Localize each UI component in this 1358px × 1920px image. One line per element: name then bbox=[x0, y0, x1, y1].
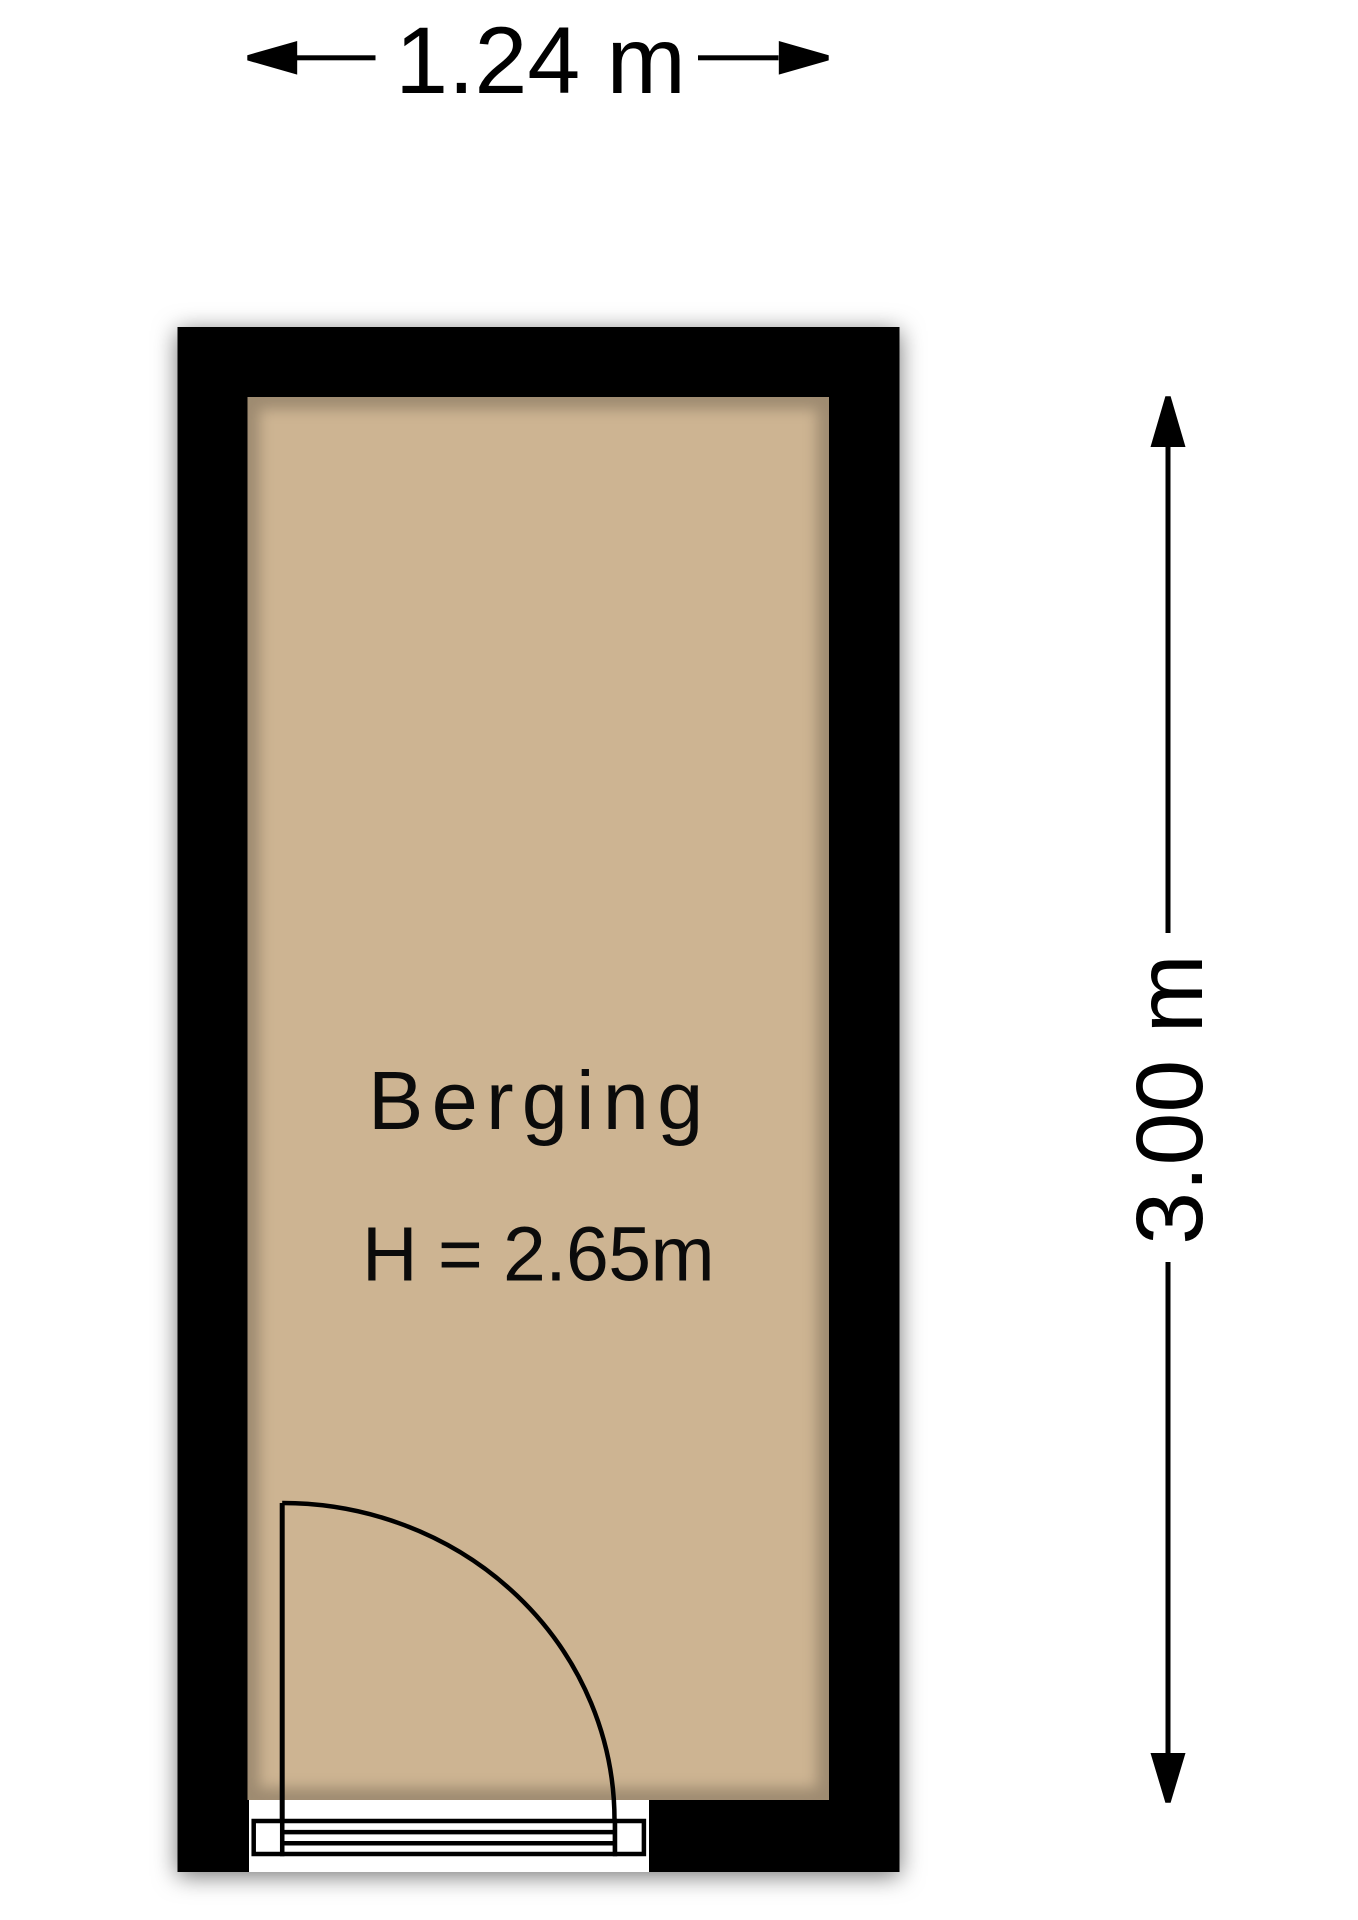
svg-text:Berging: Berging bbox=[368, 1054, 711, 1147]
svg-text:1.24 m: 1.24 m bbox=[395, 8, 685, 114]
svg-text:3.00 m: 3.00 m bbox=[1117, 954, 1223, 1244]
svg-text:H = 2.65m: H = 2.65m bbox=[362, 1212, 714, 1298]
